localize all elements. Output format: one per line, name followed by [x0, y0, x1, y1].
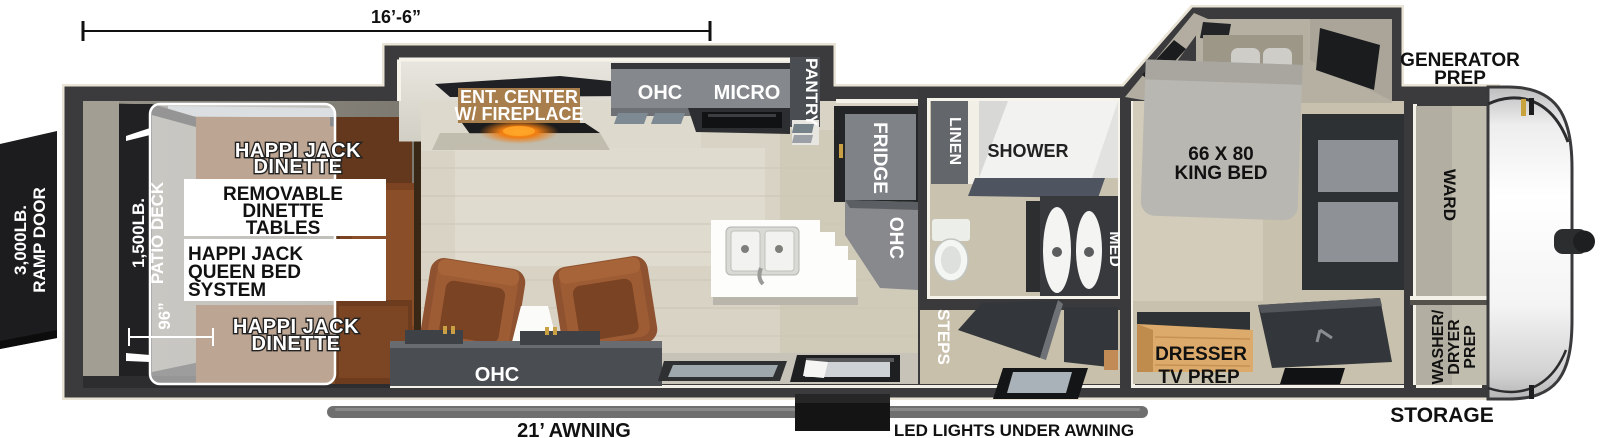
svg-text:KING BED: KING BED	[1175, 163, 1268, 184]
svg-text:DINETTE: DINETTE	[253, 156, 342, 178]
svg-text:21’ AWNING: 21’ AWNING	[517, 420, 631, 438]
svg-text:STEPS: STEPS	[934, 309, 953, 365]
svg-text:MICRO: MICRO	[714, 82, 781, 104]
svg-text:TABLES: TABLES	[246, 218, 321, 239]
svg-text:SYSTEM: SYSTEM	[188, 280, 266, 301]
svg-text:96”: 96”	[155, 302, 174, 329]
svg-text:OHC: OHC	[638, 82, 682, 104]
svg-text:OHC: OHC	[475, 364, 519, 386]
svg-text:W/ FIREPLACE: W/ FIREPLACE	[455, 104, 584, 124]
svg-text:DINETTE: DINETTE	[251, 333, 340, 355]
svg-text:WARD: WARD	[1440, 169, 1459, 221]
svg-text:FRIDGE: FRIDGE	[869, 122, 890, 194]
svg-text:PREP: PREP	[1434, 68, 1486, 89]
svg-text:LINEN: LINEN	[946, 117, 963, 165]
svg-text:66 X 80: 66 X 80	[1188, 144, 1254, 165]
svg-text:DRESSER: DRESSER	[1155, 344, 1247, 365]
svg-text:LED LIGHTS UNDER AWNING: LED LIGHTS UNDER AWNING	[894, 421, 1134, 438]
svg-text:OHC: OHC	[885, 217, 906, 260]
svg-text:16’-6”: 16’-6”	[371, 7, 421, 27]
svg-text:PANTRY: PANTRY	[802, 58, 821, 127]
svg-text:STORAGE: STORAGE	[1390, 404, 1493, 427]
svg-text:TV PREP: TV PREP	[1158, 367, 1240, 388]
svg-text:SHOWER: SHOWER	[988, 141, 1069, 161]
